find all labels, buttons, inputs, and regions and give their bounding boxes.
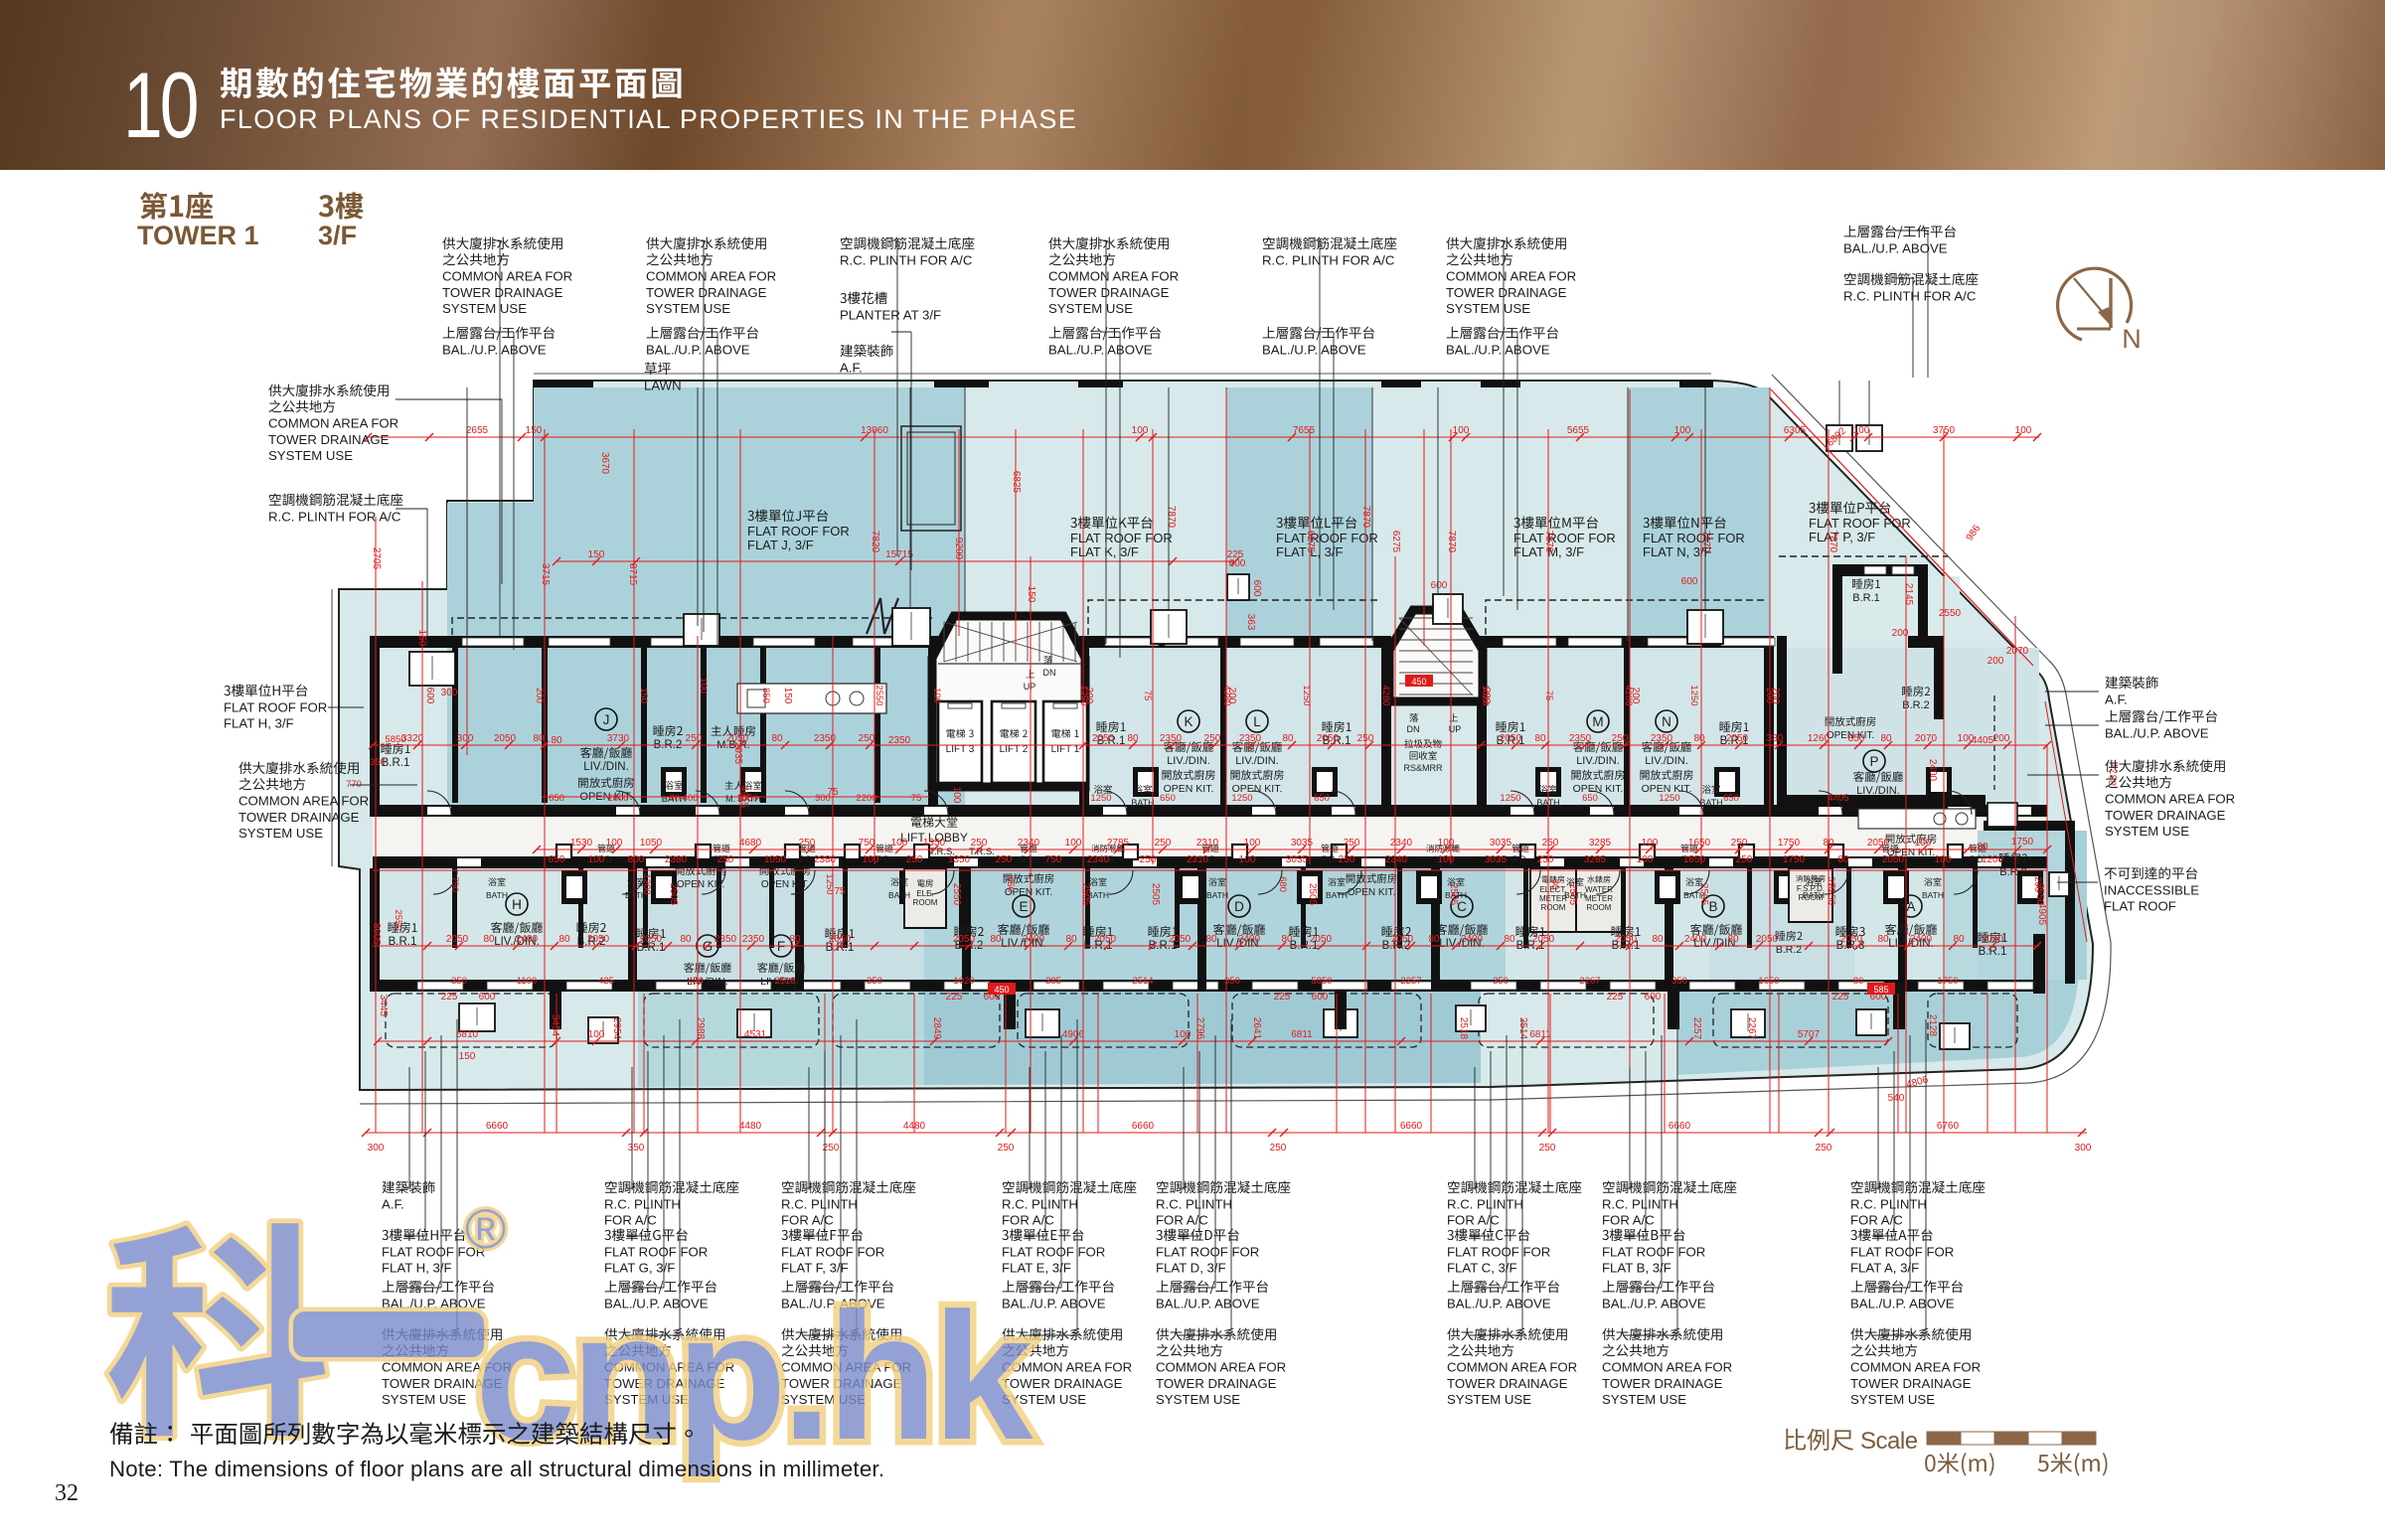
- svg-text:SYSTEM USE: SYSTEM USE: [238, 826, 323, 841]
- svg-text:225: 225: [1607, 992, 1624, 1002]
- svg-text:250: 250: [1736, 854, 1753, 865]
- svg-text:5707: 5707: [1798, 1029, 1821, 1040]
- svg-text:A.F.: A.F.: [382, 1196, 404, 1211]
- svg-text:FLAT P, 3/F: FLAT P, 3/F: [1809, 530, 1875, 544]
- svg-text:7870: 7870: [1166, 506, 1177, 529]
- svg-text:3750: 3750: [1933, 425, 1956, 436]
- svg-text:2705: 2705: [371, 547, 382, 570]
- svg-text:2050: 2050: [1532, 934, 1555, 945]
- svg-text:FOR A/C: FOR A/C: [1156, 1213, 1208, 1228]
- svg-text:6660: 6660: [1400, 1121, 1423, 1132]
- svg-text:ROOM: ROOM: [1587, 903, 1612, 912]
- svg-text:FLAT ROOF FOR: FLAT ROOF FOR: [1850, 1244, 1954, 1259]
- svg-text:SYSTEM USE: SYSTEM USE: [1156, 1392, 1240, 1407]
- svg-text:150: 150: [416, 630, 427, 647]
- svg-text:Scale: Scale: [1860, 1428, 1918, 1455]
- svg-text:6660: 6660: [1669, 1121, 1691, 1132]
- svg-text:250: 250: [1204, 733, 1221, 744]
- svg-text:2050: 2050: [494, 733, 517, 744]
- svg-text:1020: 1020: [953, 976, 974, 987]
- svg-text:E: E: [1019, 899, 1028, 914]
- svg-text:TOWER DRAINAGE: TOWER DRAINAGE: [1048, 285, 1170, 300]
- svg-text:R.C. PLINTH: R.C. PLINTH: [604, 1196, 681, 1211]
- svg-text:100: 100: [606, 838, 623, 848]
- svg-text:2400: 2400: [1927, 759, 1938, 782]
- svg-text:80: 80: [1823, 838, 1834, 848]
- svg-text:2550: 2550: [874, 685, 884, 705]
- svg-text:FLAT H, 3/F: FLAT H, 3/F: [224, 716, 294, 731]
- svg-text:R.C. PLINTH: R.C. PLINTH: [1156, 1196, 1232, 1211]
- svg-text:L: L: [1253, 714, 1261, 729]
- svg-text:BAL./U.P. ABOVE: BAL./U.P. ABOVE: [1447, 1296, 1551, 1310]
- svg-text:100: 100: [891, 838, 908, 848]
- svg-text:850: 850: [760, 688, 771, 703]
- svg-text:2514: 2514: [1517, 1017, 1528, 1040]
- svg-text:J: J: [603, 712, 610, 727]
- svg-text:150: 150: [459, 1051, 476, 1062]
- svg-text:FLAT ROOF FOR: FLAT ROOF FOR: [1276, 531, 1378, 545]
- svg-text:FLAT E, 3/F: FLAT E, 3/F: [1002, 1261, 1071, 1276]
- svg-text:330: 330: [1767, 733, 1784, 744]
- svg-text:OPEN KIT.: OPEN KIT.: [761, 879, 809, 890]
- svg-text:540: 540: [1888, 1093, 1905, 1104]
- svg-text:75: 75: [911, 793, 922, 804]
- svg-text:200: 200: [1892, 628, 1909, 639]
- svg-text:3670: 3670: [599, 452, 610, 475]
- svg-text:300: 300: [457, 733, 474, 744]
- svg-text:100: 100: [1453, 425, 1470, 436]
- svg-text:100: 100: [951, 787, 962, 804]
- svg-text:2310: 2310: [1196, 838, 1219, 848]
- svg-text:2400: 2400: [516, 934, 539, 945]
- svg-text:650: 650: [1005, 876, 1016, 892]
- svg-text:350: 350: [628, 1143, 645, 1154]
- svg-text:2050: 2050: [1092, 733, 1115, 744]
- svg-text:1250: 1250: [1231, 793, 1252, 804]
- svg-text:6275: 6275: [1390, 531, 1401, 553]
- svg-text:3035: 3035: [1485, 854, 1508, 865]
- svg-text:B.R.1: B.R.1: [1852, 592, 1880, 604]
- svg-text:600: 600: [1229, 558, 1246, 569]
- svg-text:300: 300: [441, 688, 458, 698]
- svg-text:BATH: BATH: [1699, 798, 1722, 808]
- svg-text:2050: 2050: [1756, 934, 1779, 945]
- svg-text:1250: 1250: [1500, 793, 1520, 804]
- svg-text:80: 80: [1853, 976, 1864, 987]
- svg-text:3285: 3285: [1584, 854, 1607, 865]
- svg-text:2505: 2505: [1698, 883, 1709, 906]
- svg-text:BAL./U.P. ABOVE: BAL./U.P. ABOVE: [1843, 240, 1948, 255]
- svg-text:2350: 2350: [1160, 733, 1183, 744]
- svg-text:FLAT ROOF FOR: FLAT ROOF FOR: [1447, 1244, 1550, 1259]
- svg-text:4531: 4531: [744, 1029, 767, 1040]
- svg-text:BAL./U.P. ABOVE: BAL./U.P. ABOVE: [1262, 342, 1366, 357]
- svg-text:2796: 2796: [1194, 1017, 1205, 1040]
- svg-text:FLAT ROOF: FLAT ROOF: [2104, 899, 2176, 914]
- svg-text:600: 600: [984, 992, 1001, 1002]
- svg-text:4405: 4405: [1972, 735, 1994, 746]
- svg-text:COMMON AREA FOR: COMMON AREA FOR: [1447, 1360, 1577, 1375]
- svg-text:200: 200: [1993, 733, 2010, 744]
- svg-text:2505: 2505: [1567, 883, 1578, 906]
- svg-text:6660: 6660: [486, 1121, 509, 1132]
- svg-text:600: 600: [479, 992, 496, 1002]
- svg-text:250: 250: [686, 733, 703, 744]
- svg-text:2350: 2350: [814, 733, 837, 744]
- svg-text:80: 80: [551, 735, 562, 746]
- svg-text:LIFT 1: LIFT 1: [1051, 744, 1080, 755]
- svg-text:4905: 4905: [2036, 903, 2047, 926]
- svg-text:2050: 2050: [1867, 838, 1890, 848]
- svg-text:100: 100: [931, 688, 942, 703]
- svg-text:FLAT ROOF FOR: FLAT ROOF FOR: [1156, 1244, 1259, 1259]
- svg-text:1750: 1750: [1778, 838, 1801, 848]
- svg-text:650: 650: [1160, 793, 1176, 804]
- svg-text:250: 250: [998, 1143, 1015, 1154]
- svg-text:SYSTEM USE: SYSTEM USE: [268, 448, 353, 463]
- svg-text:2050: 2050: [953, 934, 976, 945]
- svg-text:FLAT A, 3/F: FLAT A, 3/F: [1850, 1261, 1919, 1276]
- svg-text:R.C. PLINTH: R.C. PLINTH: [1447, 1196, 1523, 1211]
- svg-text:363: 363: [1245, 614, 1256, 631]
- svg-text:6275: 6275: [1305, 531, 1316, 553]
- svg-text:225: 225: [441, 992, 458, 1002]
- svg-text:2050: 2050: [587, 934, 610, 945]
- svg-text:3715: 3715: [627, 563, 638, 586]
- svg-text:FLAT ROOF FOR: FLAT ROOF FOR: [747, 524, 850, 539]
- svg-text:2340: 2340: [1018, 838, 1040, 848]
- svg-text:2200: 2200: [856, 793, 876, 804]
- svg-text:TOWER DRAINAGE: TOWER DRAINAGE: [1602, 1376, 1723, 1391]
- svg-text:1530: 1530: [570, 838, 593, 848]
- svg-text:80: 80: [1428, 934, 1440, 945]
- svg-text:BATH: BATH: [888, 890, 910, 900]
- svg-text:COMMON AREA FOR: COMMON AREA FOR: [1602, 1360, 1732, 1375]
- svg-text:COMMON AREA FOR: COMMON AREA FOR: [1048, 269, 1179, 284]
- svg-text:BATH: BATH: [486, 890, 508, 900]
- svg-text:FLAT ROOF FOR: FLAT ROOF FOR: [1809, 516, 1911, 531]
- svg-text:80: 80: [1727, 934, 1739, 945]
- svg-text:2935: 2935: [732, 742, 743, 765]
- svg-text:2050: 2050: [1500, 733, 1522, 744]
- svg-text:R.C. PLINTH: R.C. PLINTH: [1850, 1196, 1927, 1211]
- svg-text:2050: 2050: [829, 934, 852, 945]
- svg-text:SYSTEM USE: SYSTEM USE: [2105, 824, 2189, 839]
- svg-text:650: 650: [549, 793, 564, 804]
- svg-text:2340: 2340: [1390, 838, 1413, 848]
- svg-text:75: 75: [834, 886, 846, 897]
- svg-text:2505: 2505: [1307, 883, 1318, 906]
- svg-text:80: 80: [680, 934, 692, 945]
- svg-text:BATH: BATH: [1206, 890, 1228, 900]
- svg-text:TOWER DRAINAGE: TOWER DRAINAGE: [1850, 1376, 1972, 1391]
- svg-text:4906: 4906: [1062, 1029, 1085, 1040]
- svg-text:1250: 1250: [1301, 685, 1312, 705]
- svg-text:2267: 2267: [1579, 976, 1600, 987]
- svg-text:600: 600: [1251, 580, 1262, 597]
- svg-text:6305: 6305: [1784, 425, 1807, 436]
- svg-text:SYSTEM USE: SYSTEM USE: [1446, 301, 1530, 316]
- svg-text:80: 80: [1953, 934, 1965, 945]
- svg-text:2050: 2050: [1310, 934, 1333, 945]
- svg-text:2070: 2070: [2006, 646, 2029, 657]
- svg-text:2350: 2350: [888, 735, 911, 746]
- svg-text:2988: 2988: [695, 1017, 706, 1040]
- svg-text:®: ®: [465, 1197, 506, 1260]
- svg-text:2070: 2070: [1915, 733, 1938, 744]
- svg-text:80: 80: [1065, 934, 1077, 945]
- svg-text:250: 250: [971, 838, 988, 848]
- svg-text:350: 350: [867, 976, 882, 987]
- svg-text:750: 750: [449, 876, 460, 892]
- svg-text:FLAT F, 3/F: FLAT F, 3/F: [781, 1261, 849, 1276]
- svg-text:COMMON AREA FOR: COMMON AREA FOR: [268, 416, 398, 431]
- svg-text:100: 100: [1853, 425, 1870, 436]
- svg-text:100: 100: [1175, 1029, 1192, 1040]
- svg-text:370: 370: [1826, 876, 1836, 892]
- svg-text:2050: 2050: [446, 934, 469, 945]
- svg-text:100: 100: [1935, 854, 1952, 865]
- svg-text:250: 250: [1344, 838, 1360, 848]
- svg-text:PLANTER AT 3/F: PLANTER AT 3/F: [840, 307, 941, 322]
- svg-text:RS&MRR: RS&MRR: [1403, 763, 1443, 773]
- svg-text:SYSTEM USE: SYSTEM USE: [1048, 301, 1133, 316]
- svg-text:BAL./U.P. ABOVE: BAL./U.P. ABOVE: [1850, 1296, 1955, 1310]
- svg-text:150: 150: [1026, 586, 1036, 603]
- svg-text:300: 300: [815, 793, 831, 804]
- svg-text:ROOM: ROOM: [1541, 903, 1566, 912]
- svg-text:2641: 2641: [1251, 1017, 1262, 1040]
- svg-text:250: 250: [1270, 1143, 1287, 1154]
- svg-text:R.C. PLINTH FOR A/C: R.C. PLINTH FOR A/C: [268, 509, 401, 524]
- svg-text:2257: 2257: [1400, 976, 1421, 987]
- svg-text:225: 225: [1274, 992, 1291, 1002]
- svg-text:1350: 1350: [923, 838, 946, 848]
- svg-text:3035: 3035: [1286, 854, 1309, 865]
- svg-text:OPEN KIT.: OPEN KIT.: [1573, 783, 1624, 795]
- svg-text:600: 600: [1645, 992, 1662, 1002]
- svg-text:3445: 3445: [378, 995, 389, 1017]
- svg-text:8605: 8605: [371, 923, 382, 946]
- svg-text:770: 770: [346, 779, 362, 790]
- svg-text:350: 350: [370, 757, 386, 768]
- svg-text:FOR A/C: FOR A/C: [781, 1213, 834, 1228]
- svg-text:80: 80: [1652, 934, 1664, 945]
- svg-text:100: 100: [1642, 838, 1659, 848]
- svg-text:1650: 1650: [1758, 976, 1779, 987]
- svg-text:1650: 1650: [1688, 838, 1711, 848]
- svg-text:250: 250: [717, 854, 734, 865]
- svg-text:200: 200: [534, 688, 545, 703]
- svg-text:2505: 2505: [1080, 883, 1091, 906]
- svg-text:SYSTEM USE: SYSTEM USE: [1447, 1392, 1531, 1407]
- svg-text:80: 80: [483, 934, 495, 945]
- svg-text:BATH: BATH: [1326, 890, 1348, 900]
- svg-text:650: 650: [1723, 793, 1739, 804]
- svg-text:2050: 2050: [1094, 934, 1117, 945]
- svg-text:450: 450: [1411, 677, 1426, 687]
- svg-text:TOWER DRAINAGE: TOWER DRAINAGE: [1156, 1376, 1277, 1391]
- svg-text:UP: UP: [1024, 682, 1036, 692]
- svg-text:FLAT ROOF FOR: FLAT ROOF FOR: [781, 1244, 884, 1259]
- svg-text:Note: The dimensions of floor: Note: The dimensions of floor plans are …: [109, 1457, 884, 1481]
- svg-text:N: N: [1662, 714, 1671, 729]
- svg-text:750: 750: [1045, 854, 1062, 865]
- svg-text:P.D.: P.D.: [1021, 854, 1036, 864]
- svg-text:250: 250: [1339, 854, 1355, 865]
- svg-text:7870: 7870: [1446, 531, 1457, 553]
- svg-text:2505: 2505: [1448, 883, 1459, 906]
- svg-text:200: 200: [2032, 876, 2043, 892]
- svg-text:2050: 2050: [1840, 934, 1863, 945]
- svg-text:6811: 6811: [1291, 1029, 1313, 1040]
- svg-text:350: 350: [1493, 976, 1509, 987]
- svg-text:1350: 1350: [948, 854, 971, 865]
- svg-text:COMMON AREA FOR: COMMON AREA FOR: [442, 269, 572, 284]
- svg-text:6825: 6825: [1011, 471, 1022, 494]
- svg-text:1050: 1050: [736, 793, 757, 804]
- svg-text:80,400: 80,400: [669, 793, 698, 804]
- svg-text:2050: 2050: [1726, 733, 1749, 744]
- svg-text:TOWER DRAINAGE: TOWER DRAINAGE: [238, 810, 360, 825]
- svg-text:2400: 2400: [1238, 934, 1261, 945]
- svg-text:FOR A/C: FOR A/C: [604, 1213, 657, 1228]
- svg-text:2849: 2849: [931, 1017, 942, 1040]
- svg-text:FOR A/C: FOR A/C: [1002, 1213, 1054, 1228]
- svg-text:2550: 2550: [1939, 608, 1962, 619]
- svg-text:DN: DN: [1043, 668, 1056, 678]
- svg-text:ROOM: ROOM: [913, 898, 938, 907]
- svg-text:FLAT B, 3/F: FLAT B, 3/F: [1602, 1261, 1671, 1276]
- svg-text:1750: 1750: [1783, 854, 1806, 865]
- svg-text:2400: 2400: [1461, 934, 1484, 945]
- svg-text:2518: 2518: [1458, 1017, 1469, 1040]
- svg-text:COMMON AREA FOR: COMMON AREA FOR: [238, 794, 369, 809]
- svg-text:250: 250: [1542, 838, 1559, 848]
- svg-text:80: 80: [1281, 934, 1293, 945]
- svg-text:2050: 2050: [1317, 733, 1340, 744]
- svg-text:1750: 1750: [2011, 837, 2034, 847]
- svg-text:385: 385: [1045, 976, 1061, 987]
- svg-text:9200: 9200: [953, 538, 964, 560]
- svg-text:LIFT 3: LIFT 3: [946, 744, 975, 755]
- svg-text:K: K: [1184, 714, 1192, 729]
- svg-text:2350: 2350: [1239, 733, 1262, 744]
- svg-text:7820: 7820: [870, 531, 880, 553]
- svg-text:1260: 1260: [1808, 733, 1830, 744]
- svg-text:LIV./DIN.: LIV./DIN.: [1856, 785, 1900, 797]
- svg-text:SYSTEM USE: SYSTEM USE: [442, 301, 527, 316]
- svg-text:250: 250: [1357, 733, 1374, 744]
- svg-text:100: 100: [1915, 838, 1932, 848]
- svg-text:75: 75: [1142, 691, 1153, 701]
- svg-text:FLAT ROOF FOR: FLAT ROOF FOR: [1002, 1244, 1105, 1259]
- svg-text:1050: 1050: [764, 854, 787, 865]
- svg-text:600: 600: [1312, 992, 1329, 1002]
- svg-text:7870: 7870: [1543, 531, 1554, 553]
- svg-text:2550: 2550: [393, 909, 403, 930]
- svg-text:80: 80: [1504, 934, 1515, 945]
- svg-text:FLAT ROOF FOR: FLAT ROOF FOR: [1602, 1244, 1705, 1259]
- svg-text:1050: 1050: [640, 838, 663, 848]
- svg-text:80: 80: [771, 733, 783, 744]
- svg-text:FLAT ROOF FOR: FLAT ROOF FOR: [1513, 531, 1616, 545]
- svg-text:2050: 2050: [1982, 934, 2004, 945]
- svg-text:1300: 1300: [641, 873, 652, 894]
- svg-text:250: 250: [1539, 1143, 1556, 1154]
- svg-text:FOR A/C: FOR A/C: [1850, 1213, 1903, 1228]
- svg-text:2350: 2350: [715, 934, 737, 945]
- svg-text:2505: 2505: [1150, 883, 1161, 906]
- svg-text:6760: 6760: [1937, 1121, 1960, 1132]
- svg-text:80: 80: [1877, 934, 1889, 945]
- svg-text:1100: 1100: [517, 976, 537, 987]
- svg-text:LAWN: LAWN: [644, 378, 682, 392]
- svg-text:600: 600: [1870, 992, 1887, 1002]
- svg-text:M: M: [1592, 714, 1603, 729]
- svg-text:R.C. PLINTH FOR A/C: R.C. PLINTH FOR A/C: [840, 252, 973, 267]
- svg-text:R.C. PLINTH: R.C. PLINTH: [1002, 1196, 1078, 1211]
- svg-text:2514: 2514: [1132, 976, 1153, 987]
- svg-text:cnp.hk: cnp.hk: [475, 1275, 1033, 1477]
- svg-text:2340: 2340: [1385, 854, 1408, 865]
- svg-text:1250: 1250: [1090, 793, 1111, 804]
- svg-text:4480: 4480: [739, 1121, 762, 1132]
- svg-text:COMMON AREA FOR: COMMON AREA FOR: [1850, 1360, 1981, 1375]
- svg-text:SYSTEM USE: SYSTEM USE: [382, 1392, 466, 1407]
- svg-text:200: 200: [1764, 688, 1775, 703]
- svg-text:FLAT ROOF FOR: FLAT ROOF FOR: [1643, 531, 1745, 545]
- svg-text:600: 600: [424, 688, 435, 704]
- svg-text:100: 100: [588, 1029, 605, 1040]
- svg-text:2380: 2380: [665, 854, 688, 865]
- svg-text:TOWER DRAINAGE: TOWER DRAINAGE: [268, 432, 390, 447]
- svg-text:BAL./U.P. ABOVE: BAL./U.P. ABOVE: [1156, 1296, 1260, 1310]
- svg-text:TOWER DRAINAGE: TOWER DRAINAGE: [1447, 1376, 1568, 1391]
- svg-text:300: 300: [2075, 1143, 2092, 1154]
- svg-text:B.R.1: B.R.1: [1979, 946, 2007, 958]
- svg-text:2400: 2400: [1684, 934, 1707, 945]
- svg-text:A.F.: A.F.: [840, 360, 863, 375]
- svg-text:TOWER DRAINAGE: TOWER DRAINAGE: [646, 285, 767, 300]
- svg-text:650: 650: [1314, 793, 1330, 804]
- svg-text:1250: 1250: [1078, 685, 1089, 705]
- svg-text:225: 225: [1832, 992, 1849, 1002]
- svg-text:150: 150: [782, 688, 793, 704]
- svg-text:6660: 6660: [1132, 1121, 1155, 1132]
- svg-text:80: 80: [1549, 879, 1560, 890]
- svg-text:2380: 2380: [814, 854, 837, 865]
- svg-text:1250: 1250: [1688, 685, 1699, 705]
- svg-text:250: 250: [799, 838, 816, 848]
- svg-text:2550: 2550: [951, 883, 962, 906]
- svg-text:P.D.: P.D.: [1512, 854, 1528, 864]
- svg-text:80: 80: [990, 934, 1002, 945]
- svg-text:850: 850: [1848, 733, 1865, 744]
- svg-text:H: H: [512, 897, 522, 912]
- svg-text:8374: 8374: [2108, 763, 2121, 787]
- svg-text:WATER: WATER: [1585, 885, 1613, 894]
- svg-text:BAL./U.P. ABOVE: BAL./U.P. ABOVE: [1446, 342, 1550, 357]
- svg-text:100: 100: [1637, 854, 1654, 865]
- svg-text:LIFT 2: LIFT 2: [1000, 744, 1029, 755]
- svg-text:TOWER DRAINAGE: TOWER DRAINAGE: [1446, 285, 1567, 300]
- svg-text:150: 150: [638, 688, 649, 703]
- svg-text:3730: 3730: [607, 733, 630, 744]
- svg-text:750: 750: [859, 838, 875, 848]
- svg-text:2050: 2050: [1169, 934, 1192, 945]
- svg-text:80: 80: [1880, 733, 1892, 744]
